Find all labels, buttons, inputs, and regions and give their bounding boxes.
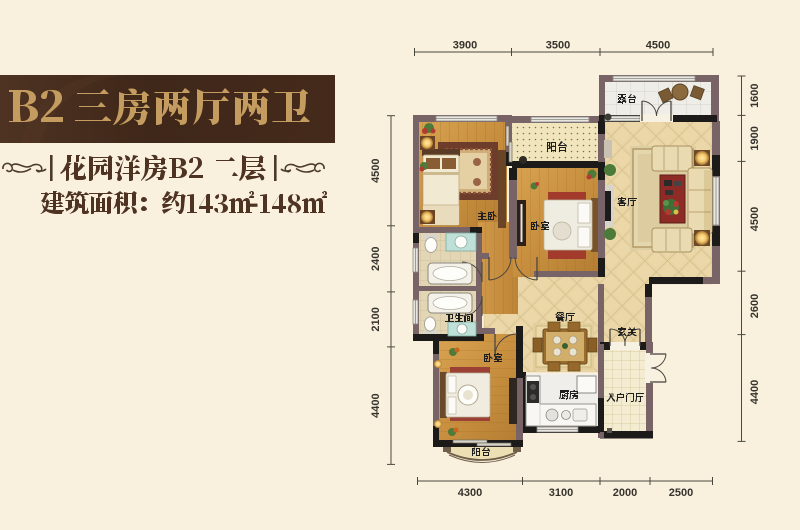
svg-text:2500: 2500 (669, 487, 693, 499)
svg-text:4400: 4400 (749, 380, 761, 404)
svg-text:1900: 1900 (749, 126, 761, 150)
svg-text:4300: 4300 (458, 487, 482, 499)
svg-text:4500: 4500 (370, 158, 382, 182)
svg-text:3900: 3900 (453, 40, 477, 52)
svg-text:2000: 2000 (613, 487, 637, 499)
svg-text:2100: 2100 (370, 307, 382, 331)
svg-text:1600: 1600 (749, 83, 761, 107)
svg-text:3100: 3100 (549, 487, 573, 499)
svg-text:4500: 4500 (646, 40, 670, 52)
svg-text:3500: 3500 (546, 40, 570, 52)
svg-text:4400: 4400 (370, 393, 382, 417)
svg-text:2600: 2600 (749, 294, 761, 318)
svg-text:2400: 2400 (370, 247, 382, 271)
svg-text:4500: 4500 (749, 207, 761, 231)
